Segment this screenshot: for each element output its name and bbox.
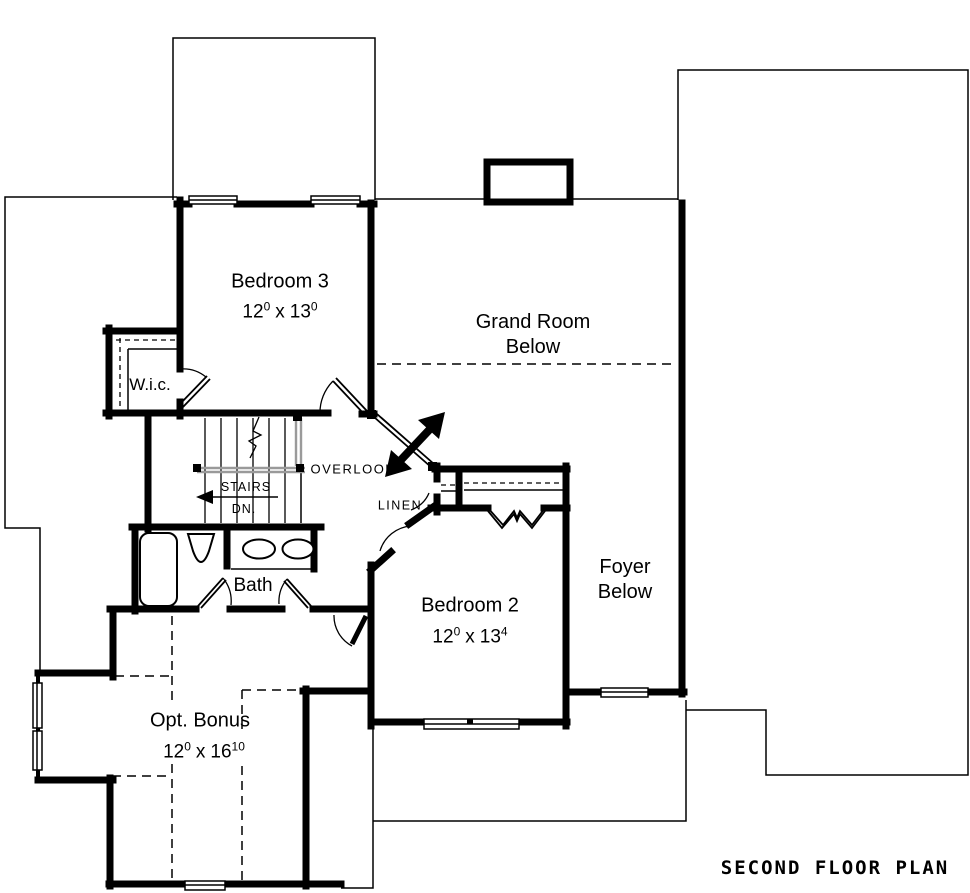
bedroom2-name: Bedroom 2	[421, 595, 519, 617]
wic-name: W.i.c.	[129, 375, 171, 394]
stairs-text: STAIRS	[221, 480, 271, 494]
label-overlook: OVERLOOK	[311, 463, 396, 478]
railing-post	[296, 464, 304, 472]
room-dim-bedroom2: 120x134	[432, 626, 507, 649]
plan-title-text: SECOND FLOOR PLAN	[721, 857, 949, 879]
stair-break-line	[249, 417, 261, 458]
overlook-post	[428, 462, 437, 471]
bedroom2-dim-w-sup: 0	[454, 625, 461, 639]
foyer-line2: Below	[598, 580, 652, 605]
room-label-bath: Bath	[233, 575, 272, 597]
room-label-bonus: Opt. Bonus	[150, 710, 250, 733]
railing-post	[193, 464, 201, 472]
room-label-grand-room-below: Grand Room Below	[476, 310, 591, 360]
bonus-name: Opt. Bonus	[150, 710, 250, 732]
bedroom3-dim-sep: x	[275, 302, 285, 323]
open-below-dashed-lines	[112, 364, 677, 883]
stair-railing-gray	[197, 418, 305, 472]
bonus-dim-sep: x	[196, 742, 206, 763]
bedroom3-name: Bedroom 3	[231, 271, 329, 293]
bedroom2-dim-h: 13	[480, 627, 501, 648]
bonus-dim-w: 12	[163, 742, 184, 763]
foyer-line1: Foyer	[598, 555, 652, 580]
railing-post	[293, 412, 302, 421]
bedroom2-window-mullion	[467, 719, 473, 724]
bedroom3-dim-w-sup: 0	[264, 300, 271, 314]
floor-plan-drawing	[0, 0, 970, 893]
bath-name: Bath	[233, 575, 272, 596]
bedroom3-dim-w: 12	[242, 302, 263, 323]
plan-title: SECOND FLOOR PLAN	[721, 858, 949, 880]
room-label-bedroom2: Bedroom 2	[421, 595, 519, 618]
grand-room-line2: Below	[476, 335, 591, 360]
bonus-dim-h-sup: 10	[232, 740, 245, 754]
bedroom2-dim-w: 12	[432, 627, 453, 648]
sink-left	[243, 540, 275, 559]
bonus-door-leaf	[352, 616, 366, 644]
linen-text: LINEN	[378, 499, 422, 513]
grand-room-line1: Grand Room	[476, 310, 591, 335]
bedroom2-dim-h-sup: 4	[501, 625, 508, 639]
overlook-text: OVERLOOK	[311, 462, 396, 477]
bonus-dim-w-sup: 0	[184, 740, 191, 754]
walls	[38, 200, 684, 886]
bifold-closet-doors	[488, 508, 545, 528]
room-label-foyer-below: Foyer Below	[598, 555, 652, 605]
bedroom2-dim-sep: x	[465, 627, 475, 648]
chimney-box	[487, 162, 570, 202]
bedroom3-dim-h: 13	[290, 302, 311, 323]
windows	[33, 196, 648, 890]
label-stairs-dn: DN.	[232, 502, 257, 516]
label-stairs: STAIRS	[221, 480, 271, 494]
second-floor-plan: Bedroom 3 120x130 Grand Room Below W.i.c…	[0, 0, 970, 893]
room-label-bedroom3: Bedroom 3	[231, 271, 329, 294]
room-dim-bedroom3: 120x130	[242, 301, 317, 324]
stairs-dn-text: DN.	[232, 502, 257, 516]
bedroom3-dim-h-sup: 0	[311, 300, 318, 314]
toilet	[188, 534, 214, 562]
bathtub	[140, 533, 177, 606]
room-label-wic: W.i.c.	[129, 375, 171, 395]
sink-right	[283, 540, 314, 559]
room-dim-bonus: 120x1610	[163, 741, 245, 764]
bonus-dim-h: 16	[210, 742, 231, 763]
label-linen: LINEN	[378, 499, 422, 514]
overlook-post	[367, 410, 376, 419]
